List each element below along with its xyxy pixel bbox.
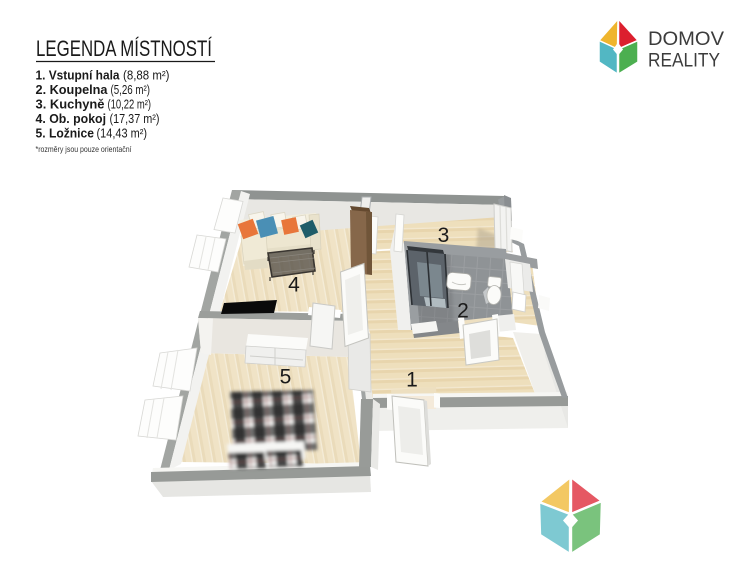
svg-text:3: 3: [438, 224, 450, 247]
svg-text:3. Kuchyně: 3. Kuchyně: [36, 98, 105, 112]
svg-text:(10,22 m²): (10,22 m²): [108, 98, 152, 112]
svg-text:LEGENDA MÍSTNOSTÍ: LEGENDA MÍSTNOSTÍ: [36, 36, 213, 61]
svg-text:4: 4: [288, 274, 300, 297]
svg-text:(8,88 m²): (8,88 m²): [123, 69, 170, 83]
svg-text:5. Ložnice: 5. Ložnice: [36, 127, 95, 141]
svg-text:*rozměry jsou pouze orientační: *rozměry jsou pouze orientační: [36, 144, 133, 154]
svg-text:4. Ob. pokoj: 4. Ob. pokoj: [36, 112, 107, 126]
svg-text:(17,37 m²): (17,37 m²): [110, 112, 160, 126]
svg-text:2: 2: [457, 300, 469, 323]
svg-text:5: 5: [280, 366, 292, 389]
svg-text:(5,26 m²): (5,26 m²): [111, 83, 151, 97]
svg-text:REALITY: REALITY: [648, 51, 720, 72]
svg-text:(14,43 m²): (14,43 m²): [97, 127, 148, 141]
svg-text:1: 1: [406, 369, 418, 392]
svg-text:2. Koupelna: 2. Koupelna: [36, 83, 109, 97]
svg-text:1. Vstupní hala: 1. Vstupní hala: [36, 69, 121, 83]
svg-text:DOMOV: DOMOV: [648, 29, 724, 50]
